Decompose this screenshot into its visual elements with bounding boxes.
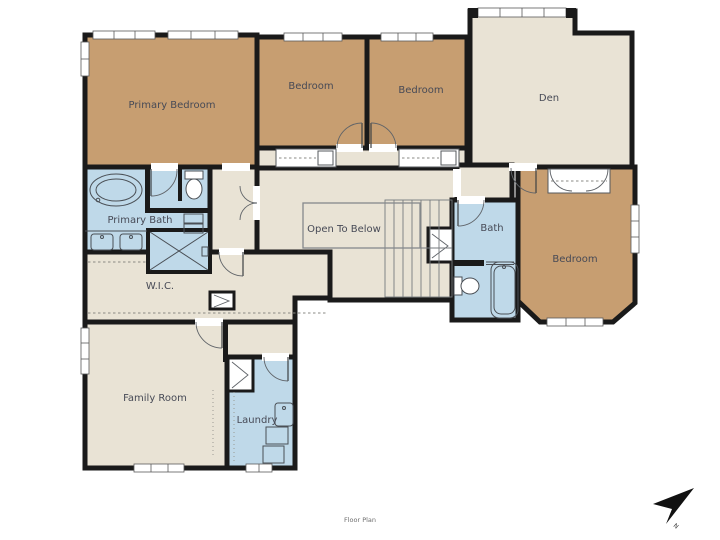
label-bath: Bath <box>480 223 503 234</box>
floor-plan-page: Primary Bedroom Bedroom Bedroom Den Prim… <box>0 0 720 540</box>
caption: Floor Plan <box>344 516 376 524</box>
window <box>93 31 155 39</box>
toilet-icon <box>454 277 479 295</box>
label-open-to-below: Open To Below <box>307 224 381 235</box>
hall-right <box>457 165 512 200</box>
bay-window <box>468 8 576 18</box>
label-bedroom-top-left: Bedroom <box>288 81 333 92</box>
window <box>168 31 238 39</box>
room-bedroom-top-left <box>257 37 367 148</box>
floor-plan-drawing: Primary Bedroom Bedroom Bedroom Den Prim… <box>0 0 720 540</box>
closet <box>399 149 459 167</box>
window <box>134 464 184 472</box>
label-family-room: Family Room <box>123 393 187 404</box>
window <box>381 33 433 41</box>
label-bedroom-top-right: Bedroom <box>398 85 443 96</box>
north-arrow-icon <box>653 488 694 524</box>
compass: N <box>653 488 694 531</box>
closet-bifold <box>548 169 610 193</box>
label-wic: W.I.C. <box>146 281 174 292</box>
label-laundry: Laundry <box>237 415 278 426</box>
wic-closet <box>210 292 234 309</box>
window <box>81 328 89 374</box>
hall-corridor <box>210 167 257 252</box>
laundry-closet <box>228 358 253 391</box>
window <box>81 42 89 76</box>
window <box>284 33 342 41</box>
window <box>631 205 639 253</box>
linen-closet <box>428 228 453 262</box>
label-primary-bath: Primary Bath <box>107 215 172 226</box>
label-primary-bedroom: Primary Bedroom <box>128 100 215 111</box>
label-bedroom-right: Bedroom <box>552 254 597 265</box>
window <box>246 464 272 472</box>
closet <box>276 149 336 167</box>
window <box>547 318 603 326</box>
room-den <box>470 11 632 168</box>
toilet-icon <box>185 171 203 199</box>
north-label: N <box>672 522 680 530</box>
label-den: Den <box>539 93 559 104</box>
